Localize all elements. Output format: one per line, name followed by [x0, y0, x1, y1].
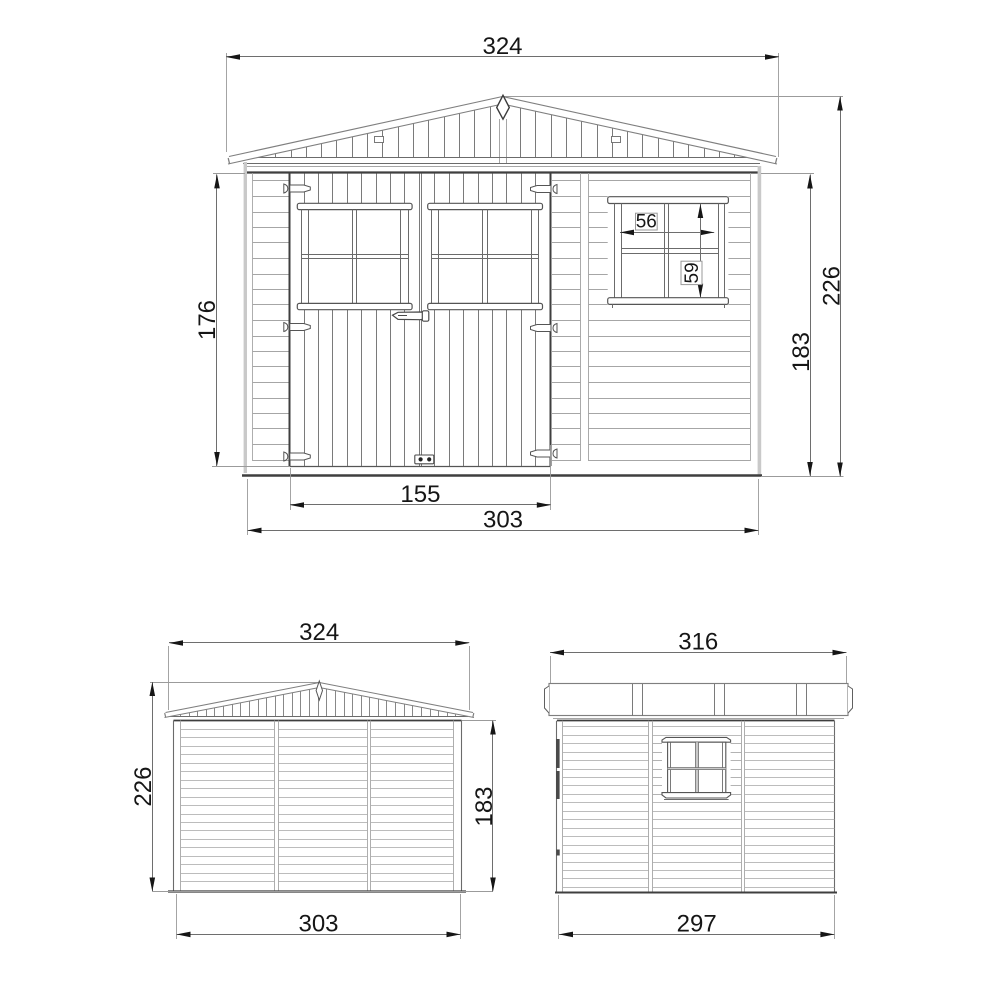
svg-text:324: 324: [299, 619, 339, 646]
svg-text:226: 226: [130, 767, 157, 807]
svg-text:303: 303: [298, 911, 338, 938]
svg-text:155: 155: [400, 481, 440, 508]
svg-text:59: 59: [682, 262, 703, 283]
svg-text:56: 56: [636, 211, 657, 232]
svg-text:176: 176: [194, 300, 221, 340]
svg-text:303: 303: [483, 507, 523, 534]
svg-text:316: 316: [678, 629, 718, 656]
svg-text:324: 324: [482, 33, 522, 60]
svg-text:183: 183: [788, 332, 815, 372]
svg-text:297: 297: [677, 911, 717, 938]
svg-text:226: 226: [819, 266, 846, 306]
svg-text:183: 183: [471, 786, 498, 826]
